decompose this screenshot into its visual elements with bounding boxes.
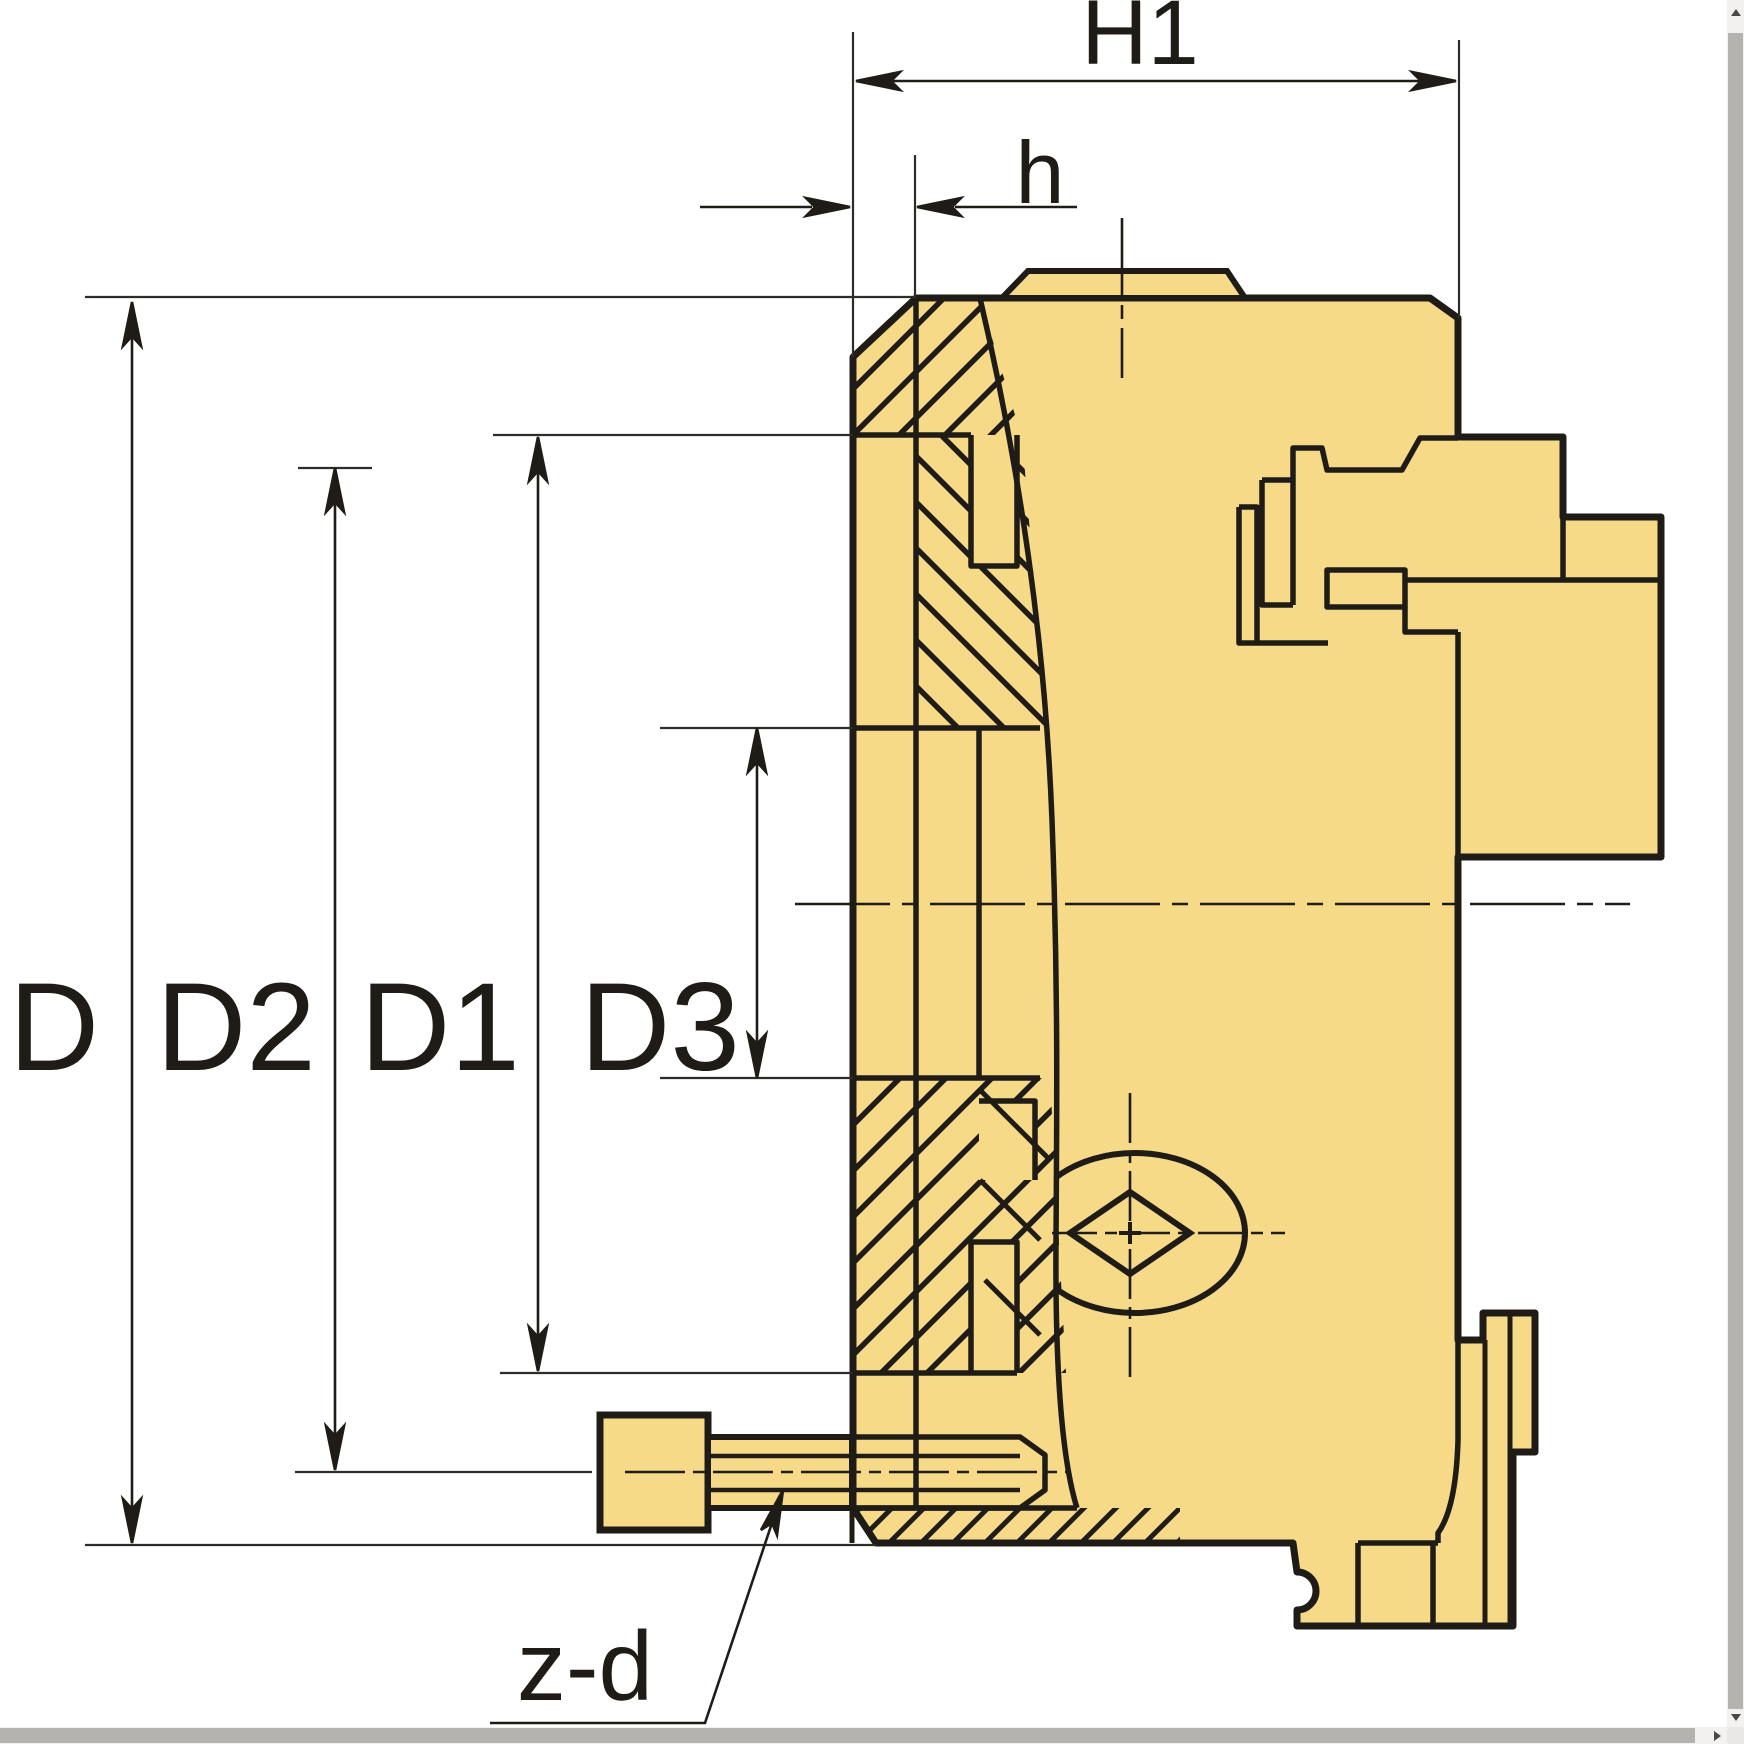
scrollbar-corner — [1727, 1727, 1744, 1744]
horizontal-scrollbar-thumb[interactable] — [0, 1728, 1695, 1743]
label-d1: D1 — [360, 958, 520, 1097]
scroll-down-icon — [1731, 1714, 1741, 1721]
scroll-right-icon — [1714, 1731, 1721, 1741]
label-d: D — [9, 958, 99, 1097]
technical-drawing: D D2 D1 D3 H1 h z-d — [0, 0, 1744, 1744]
label-d2: D2 — [156, 958, 316, 1097]
horizontal-scrollbar[interactable] — [0, 1727, 1727, 1744]
body-outline — [853, 298, 1661, 1626]
scroll-up-icon — [1731, 9, 1741, 16]
scroll-right-button[interactable] — [1705, 1727, 1727, 1744]
label-zd: z-d — [517, 1611, 653, 1721]
top-jaw-tip — [1002, 271, 1245, 298]
label-h1: H1 — [1081, 0, 1199, 84]
label-d3: D3 — [580, 958, 740, 1097]
scroll-down-button[interactable] — [1727, 1709, 1744, 1727]
vertical-scrollbar[interactable] — [1727, 0, 1744, 1727]
scroll-up-button[interactable] — [1727, 0, 1744, 26]
chuck-body — [600, 271, 1661, 1626]
vertical-scrollbar-thumb[interactable] — [1728, 33, 1743, 1709]
label-h: h — [1016, 123, 1065, 222]
drawing-viewport: D D2 D1 D3 H1 h z-d — [0, 0, 1744, 1744]
